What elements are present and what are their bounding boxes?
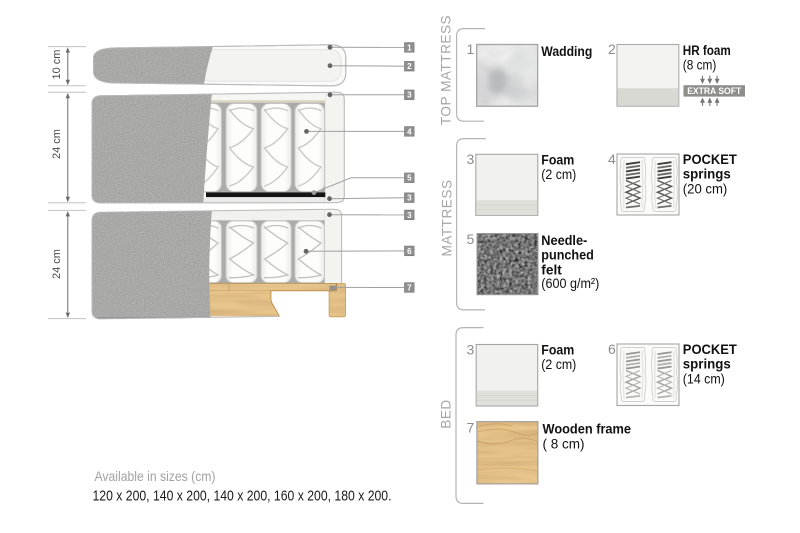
svg-text:6: 6	[407, 247, 412, 256]
svg-text:(600 g/m²): (600 g/m²)	[541, 276, 599, 292]
svg-text:(8 cm): (8 cm)	[683, 57, 717, 73]
svg-text:1: 1	[407, 43, 412, 52]
svg-text:3: 3	[407, 91, 412, 100]
svg-text:4: 4	[407, 127, 412, 136]
svg-text:(20 cm): (20 cm)	[683, 182, 728, 198]
svg-text:Available in sizes (cm): Available in sizes (cm)	[95, 469, 216, 484]
svg-text:3: 3	[407, 211, 412, 220]
svg-text:(14 cm): (14 cm)	[683, 372, 725, 388]
svg-text:24 cm: 24 cm	[51, 129, 63, 159]
svg-text:POCKET: POCKET	[683, 152, 737, 168]
svg-text:Wooden frame: Wooden frame	[543, 422, 632, 438]
svg-text:MATTRESS: MATTRESS	[440, 179, 455, 256]
svg-text:2: 2	[407, 62, 412, 71]
svg-text:(2 cm): (2 cm)	[541, 167, 576, 183]
svg-text:EXTRA SOFT: EXTRA SOFT	[687, 86, 741, 97]
svg-text:1: 1	[467, 41, 475, 57]
svg-text:4: 4	[608, 151, 616, 167]
svg-text:springs: springs	[683, 357, 731, 373]
svg-text:punched: punched	[541, 248, 594, 264]
svg-text:POCKET: POCKET	[683, 342, 737, 358]
svg-text:3: 3	[467, 342, 475, 358]
svg-text:springs: springs	[683, 167, 731, 183]
svg-text:3: 3	[467, 151, 475, 167]
svg-text:(2 cm): (2 cm)	[541, 357, 576, 373]
svg-text:Needle-: Needle-	[541, 233, 587, 249]
svg-text:( 8 cm): ( 8 cm)	[543, 437, 585, 453]
svg-text:BED: BED	[439, 399, 454, 428]
svg-text:5: 5	[467, 231, 475, 247]
svg-text:3: 3	[407, 194, 412, 203]
svg-text:120 x 200, 140 x 200, 140 x 20: 120 x 200, 140 x 200, 140 x 200, 160 x 2…	[93, 489, 392, 505]
svg-text:7: 7	[467, 420, 475, 436]
svg-text:5: 5	[407, 174, 412, 183]
svg-text:6: 6	[608, 341, 616, 357]
svg-text:TOP MATTRESS: TOP MATTRESS	[439, 15, 454, 125]
svg-text:10 cm: 10 cm	[51, 50, 63, 80]
svg-text:7: 7	[407, 283, 412, 292]
svg-text:24 cm: 24 cm	[51, 249, 63, 279]
svg-text:2: 2	[608, 41, 616, 57]
svg-text:Wadding: Wadding	[541, 44, 592, 60]
